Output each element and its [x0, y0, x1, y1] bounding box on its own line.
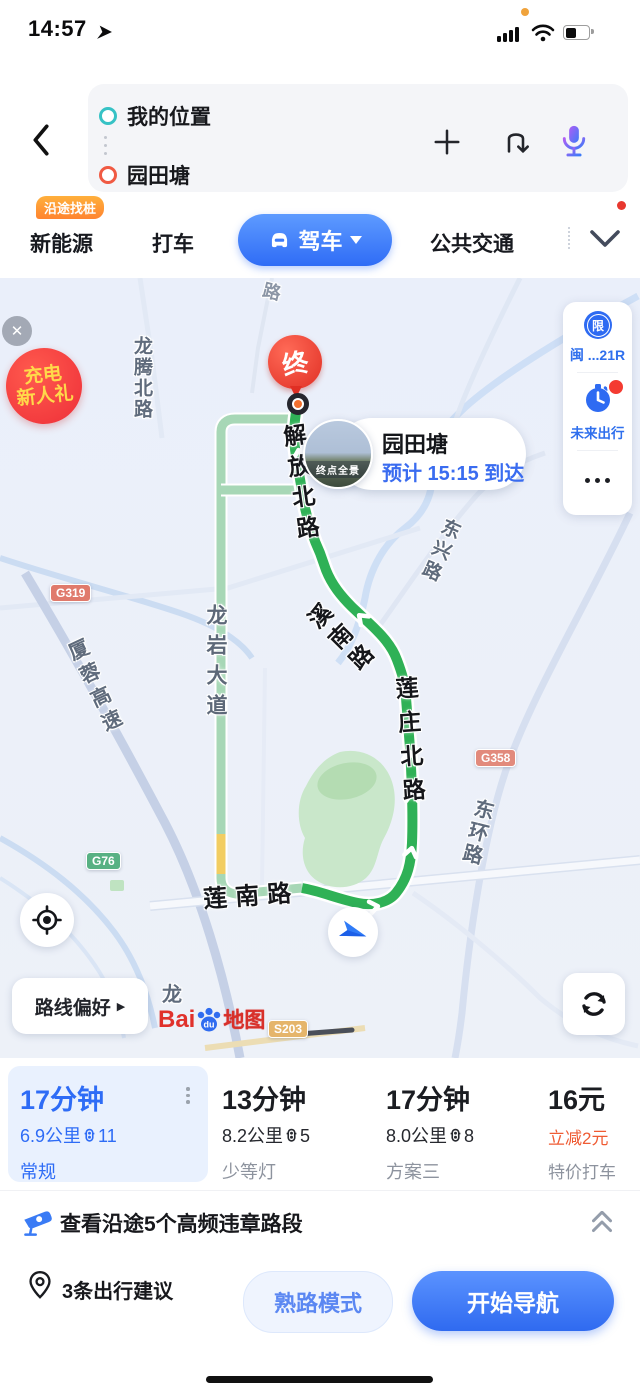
start-navigation-button[interactable]: 开始导航 [412, 1271, 614, 1331]
future-departure-label[interactable]: 未来出行 [563, 422, 632, 442]
map-side-panel: 限 闽 ...21R 未来出行 [563, 302, 632, 515]
restriction-icon[interactable]: 限 [584, 311, 612, 339]
locate-me-button[interactable] [20, 893, 74, 947]
route-option-1-selected[interactable]: 17分钟 6.9公里11 常规 [8, 1066, 208, 1182]
logo-bai: Bai [158, 1006, 195, 1034]
option1-tag: 常规 [20, 1158, 56, 1184]
shield-g76: G76 [86, 852, 121, 870]
road-label-liannan-road: 莲南路 [202, 873, 300, 915]
navigation-arrow-icon [336, 915, 370, 949]
option2-lights-count: 5 [300, 1126, 310, 1146]
tab-public-transit[interactable]: 公共交通 [430, 228, 514, 258]
option4-discount: 立减2元 [548, 1124, 608, 1149]
option3-tag: 方案三 [386, 1158, 440, 1184]
collapse-icon[interactable] [592, 1211, 612, 1233]
locate-target-icon [32, 905, 62, 935]
swap-stops-icon[interactable] [502, 128, 530, 156]
baidu-maps-route-screen: 14:57 我的位置 园田塘 沿途找桩 新能源 打车 驾车 公共交通 [0, 0, 640, 1386]
destination-point-icon [287, 393, 309, 415]
route-options-panel: 17分钟 6.9公里11 常规 13分钟 8.2公里5 少等灯 17分钟 8.0… [0, 1058, 640, 1190]
option2-distance-text: 8.2公里 [222, 1126, 283, 1146]
option1-distance: 6.9公里11 [20, 1122, 117, 1148]
voice-input-icon[interactable] [559, 124, 589, 158]
logo-map-word: 地图 [223, 1004, 265, 1034]
battery-nub [591, 29, 594, 34]
add-waypoint-icon[interactable] [432, 127, 462, 157]
shield-g319: G319 [50, 584, 91, 602]
home-indicator[interactable] [206, 1376, 433, 1383]
tabs-divider [568, 227, 570, 249]
bubble-eta: 预计 15:15 到达 [382, 457, 524, 486]
wifi-icon [531, 24, 555, 42]
recording-indicator-dot [521, 8, 529, 16]
familiar-route-mode-button[interactable]: 熟路模式 [243, 1271, 393, 1333]
tab-new-energy[interactable]: 新能源 [30, 228, 93, 258]
tab-taxi[interactable]: 打车 [152, 228, 194, 258]
promo-line2: 新人礼 [16, 383, 75, 410]
car-icon [268, 231, 291, 249]
more-modes-chevron-icon[interactable] [588, 228, 622, 250]
notification-dot [617, 201, 626, 210]
panorama-caption: 终点全景 [305, 461, 371, 478]
baidu-paw-icon: du [196, 1006, 222, 1034]
option3-lights-count: 8 [464, 1126, 474, 1146]
road-label-partial-long: 龙 [162, 978, 182, 1007]
option3-distance-text: 8.0公里 [386, 1126, 447, 1146]
option3-duration: 17分钟 [386, 1078, 470, 1117]
restriction-plate-text[interactable]: 闽 ...21R [563, 345, 632, 365]
baidu-maps-logo: Bai du 地图 [158, 1004, 265, 1034]
restriction-icon-glyph: 限 [587, 314, 610, 337]
shield-g358: G358 [475, 749, 516, 767]
destination-dot-icon [99, 166, 117, 184]
shield-s203: S203 [268, 1020, 308, 1038]
road-label-longteng-north: 龙腾北路 [128, 336, 155, 420]
option1-distance-text: 6.9公里 [20, 1126, 81, 1146]
destination-marker[interactable]: 终 [268, 335, 322, 389]
side-panel-divider [577, 372, 618, 373]
travel-suggestions-link[interactable]: 3条出行建议 [62, 1275, 173, 1304]
tab-drive-selected[interactable]: 驾车 [238, 214, 392, 266]
option1-more-icon[interactable] [186, 1084, 190, 1107]
drive-dropdown-icon [350, 236, 362, 244]
route-option-taxi[interactable]: 16元 立减2元 特价打车 [548, 1066, 638, 1182]
future-red-dot [607, 378, 625, 396]
suggestion-pin-icon [26, 1270, 54, 1300]
location-services-icon [96, 24, 113, 41]
violations-text: 查看沿途5个高频违章路段 [60, 1208, 303, 1238]
along-route-charging-badge: 沿途找桩 [36, 196, 104, 219]
bottom-action-bar: 3条出行建议 熟路模式 开始导航 [0, 1252, 640, 1386]
refresh-icon [578, 988, 610, 1020]
road-label-longyan-avenue: 龙岩大道 [200, 604, 230, 724]
destination-marker-label: 终 [278, 341, 311, 383]
option2-distance: 8.2公里5 [222, 1122, 310, 1148]
map-canvas[interactable]: 龙腾北路 厦蓉高速 龙岩大道 解放北路 溪南路 莲庄北路 东兴路 东环路 莲南路… [0, 278, 640, 1058]
route-preference-label: 路线偏好 [35, 993, 111, 1020]
route-preference-arrow-icon: ▶ [117, 1000, 125, 1013]
option2-tag: 少等灯 [222, 1158, 276, 1184]
option4-tag: 特价打车 [548, 1158, 616, 1183]
refresh-route-button[interactable] [563, 973, 625, 1035]
svg-text:du: du [204, 1020, 215, 1030]
option1-duration: 17分钟 [20, 1078, 104, 1117]
back-icon[interactable] [30, 124, 52, 156]
option3-distance: 8.0公里8 [386, 1122, 474, 1148]
route-option-2[interactable]: 13分钟 8.2公里5 少等灯 [222, 1066, 362, 1182]
origin-dot-icon [99, 107, 117, 125]
current-location-marker [328, 907, 378, 957]
origin-field[interactable]: 我的位置 [127, 101, 211, 131]
cellular-signal-icon [497, 25, 523, 43]
tab-drive-label: 驾车 [298, 224, 342, 256]
route-option-3[interactable]: 17分钟 8.0公里8 方案三 [386, 1066, 526, 1182]
option4-price: 16元 [548, 1078, 605, 1117]
status-time: 14:57 [28, 16, 87, 42]
route-connector-dots [104, 131, 107, 160]
violations-row[interactable]: 查看沿途5个高频违章路段 [0, 1190, 640, 1253]
violation-camera-icon [22, 1207, 54, 1237]
option2-duration: 13分钟 [222, 1078, 306, 1117]
option1-lights-count: 11 [98, 1126, 117, 1146]
bubble-title: 园田塘 [382, 427, 448, 459]
battery-icon [563, 25, 590, 40]
more-options-icon[interactable] [585, 478, 610, 483]
endpoint-panorama-thumbnail[interactable]: 终点全景 [303, 419, 373, 489]
promo-close-icon[interactable]: ✕ [2, 316, 32, 346]
side-panel-divider2 [577, 450, 618, 451]
destination-field[interactable]: 园田塘 [127, 160, 190, 190]
route-preference-button[interactable]: 路线偏好 ▶ [12, 978, 148, 1034]
